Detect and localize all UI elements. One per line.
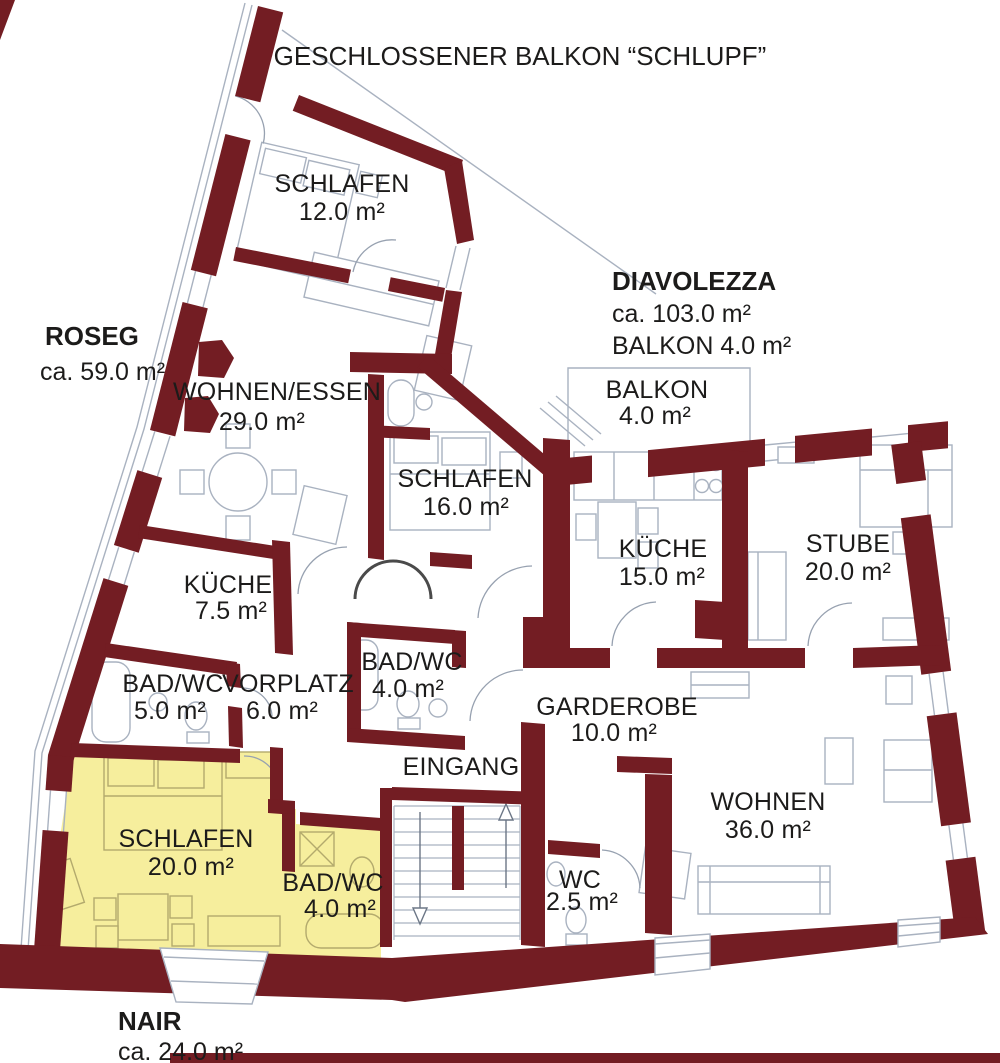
room-area-stube: 20.0 m² <box>805 558 891 586</box>
room-area-vorplatz: 6.0 m² <box>246 697 318 725</box>
apartment-roseg-name: ROSEG <box>45 321 139 351</box>
bay-window <box>160 948 268 1004</box>
room-area-badwc5: 5.0 m² <box>134 697 206 725</box>
sideboard-wohnen-essen <box>293 486 347 545</box>
room-area-wohnen-essen: 29.0 m² <box>219 408 305 436</box>
room-label-schlafen16: SCHLAFEN <box>398 465 533 493</box>
room-label-badwc5: BAD/WC <box>122 670 223 698</box>
arched-doorway <box>355 561 431 599</box>
floor-plan-svg: GESCHLOSSENER BALKON “SCHLUPF” ROSEG ca.… <box>0 0 1000 1063</box>
room-label-kueche75: KÜCHE <box>184 571 273 599</box>
room-area-balkon: 4.0 m² <box>619 402 691 430</box>
room-label-eingang: EINGANG <box>403 753 520 781</box>
room-area-schlafen20: 20.0 m² <box>148 853 234 881</box>
room-label-stube: STUBE <box>806 530 890 558</box>
room-label-badwc4-nair: BAD/WC <box>282 869 383 897</box>
room-label-badwc4-mitte: BAD/WC <box>361 648 462 676</box>
room-area-wohnen36: 36.0 m² <box>725 816 811 844</box>
floor-plan: GESCHLOSSENER BALKON “SCHLUPF” ROSEG ca.… <box>0 0 1000 1063</box>
room-area-schlafen16: 16.0 m² <box>423 493 509 521</box>
garderobe-closet <box>691 672 749 698</box>
room-label-schlafen12: SCHLAFEN <box>275 170 410 198</box>
apartment-diavolezza-balkon: BALKON 4.0 m² <box>612 332 791 360</box>
edge-fragment-bottom <box>170 1053 1000 1063</box>
room-label-wohnen-essen: WOHNEN/ESSEN <box>173 378 381 406</box>
room-label-schlafen20: SCHLAFEN <box>119 825 254 853</box>
room-area-schlafen12: 12.0 m² <box>299 198 385 226</box>
room-area-kueche15: 15.0 m² <box>619 563 705 591</box>
room-label-balkon: BALKON <box>606 376 709 404</box>
apartment-nair-area: ca. 24.0 m² <box>118 1038 243 1063</box>
plan-title: GESCHLOSSENER BALKON “SCHLUPF” <box>274 41 767 71</box>
apartment-roseg-area: ca. 59.0 m² <box>40 358 165 386</box>
room-label-kueche15: KÜCHE <box>619 535 708 563</box>
room-label-garderobe: GARDEROBE <box>536 693 698 721</box>
room-label-vorplatz: VORPLATZ <box>222 670 354 698</box>
apartment-diavolezza-name: DIAVOLEZZA <box>612 266 776 296</box>
room-area-kueche75: 7.5 m² <box>195 597 267 625</box>
room-area-garderobe: 10.0 m² <box>571 719 657 747</box>
room-label-wohnen36: WOHNEN <box>710 788 825 816</box>
room-area-badwc4-nair: 4.0 m² <box>304 895 376 923</box>
room-area-badwc4-mitte: 4.0 m² <box>372 675 444 703</box>
dining-table <box>180 424 296 540</box>
apartment-diavolezza-area: ca. 103.0 m² <box>612 300 751 328</box>
apartment-nair-name: NAIR <box>118 1006 182 1036</box>
room-area-wc25: 2.5 m² <box>546 888 618 916</box>
edge-fragment-top-left <box>0 0 15 40</box>
